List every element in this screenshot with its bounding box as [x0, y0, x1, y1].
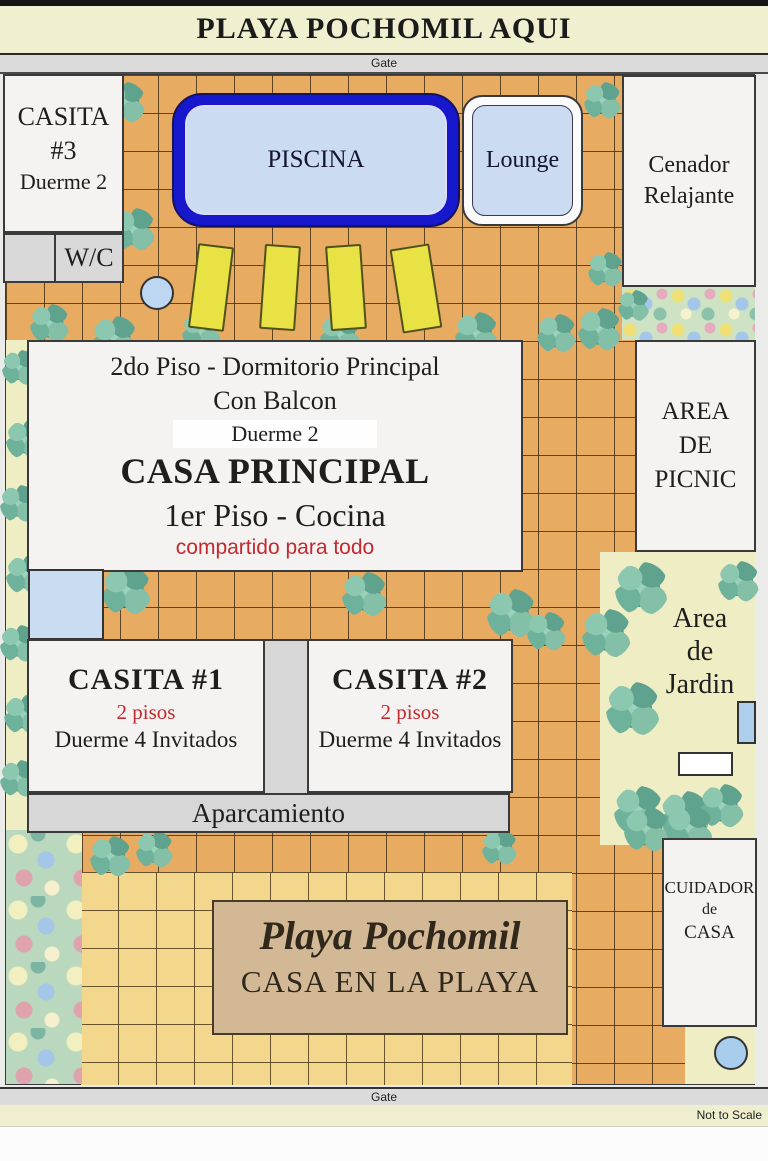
aparcamiento: Aparcamiento [27, 793, 510, 833]
casita-3-sleeps: Duerme 2 [5, 168, 122, 196]
casita-2: CASITA #2 2 pisos Duerme 4 Invitados [307, 639, 513, 793]
casa-floor2: 2do Piso - Dormitorio Principal [29, 350, 521, 384]
cenador-relajante: Cenador Relajante [622, 75, 756, 287]
cuidador-line2: de [664, 899, 755, 920]
shrub-icon [342, 572, 388, 618]
gate-top-strip: Gate [0, 55, 768, 74]
lounge-tub: Lounge [462, 95, 583, 226]
scale-note: Not to Scale [697, 1108, 762, 1122]
cuidador-line1: CUIDADOR [664, 876, 755, 899]
terrace [28, 569, 104, 640]
casita-2-floors: 2 pisos [309, 699, 511, 725]
cenador-line2: Relajante [644, 181, 735, 212]
pool-label: PISCINA [267, 146, 364, 174]
area-de-picnic: AREA DE PICNIC [635, 340, 756, 552]
shrub-icon [537, 314, 577, 354]
casitas-walkway [263, 639, 309, 793]
pool-water: PISCINA [187, 107, 445, 213]
picnic-line1: AREA [661, 395, 729, 429]
casita-3: CASITA #3 Duerme 2 [3, 74, 124, 233]
casa-principal: 2do Piso - Dormitorio Principal Con Balc… [27, 340, 523, 572]
site-plan: PLAYA POCHOMIL AQUI Gate CASITA #3 Duerm… [0, 0, 768, 1161]
cuidador-de-casa: CUIDADOR de CASA [662, 838, 757, 1027]
shrub-icon [136, 831, 174, 869]
lounge-label: Lounge [486, 147, 559, 174]
pool: PISCINA [172, 93, 460, 227]
lounge-water: Lounge [472, 105, 573, 216]
title-banner: PLAYA POCHOMIL AQUI [0, 6, 768, 55]
gate-top-label: Gate [371, 56, 397, 70]
round-table [140, 276, 174, 310]
casita-3-number: #3 [5, 134, 122, 168]
jardin-line2: de [640, 635, 760, 668]
shrub-icon [588, 252, 624, 288]
shrub-icon [30, 304, 70, 344]
shrub-icon [582, 609, 632, 659]
shrub-icon [584, 82, 622, 120]
casita-1: CASITA #1 2 pisos Duerme 4 Invitados [27, 639, 265, 793]
well-feature [714, 1036, 748, 1070]
casa-floor1: 1er Piso - Cocina [29, 494, 521, 536]
wc-room: W/C [54, 233, 124, 283]
lounge-chair [259, 244, 301, 331]
gate-bottom-label: Gate [371, 1090, 397, 1104]
picnic-line3: PICNIC [655, 463, 737, 497]
sign-line1: Playa Pochomil [214, 910, 566, 962]
casa-sleeps: Duerme 2 [173, 420, 376, 448]
aparcamiento-label: Aparcamiento [192, 798, 345, 828]
scale-note-strip: Not to Scale [0, 1105, 768, 1127]
utility-box [3, 233, 56, 283]
cenador-line1: Cenador [648, 150, 729, 181]
casita-1-name: CASITA #1 [29, 661, 263, 699]
shrub-icon [718, 561, 760, 603]
lounge-chair [325, 244, 367, 331]
casita-3-name: CASITA [5, 100, 122, 134]
jardin-line3: Jardin [640, 668, 760, 701]
garden-bench [678, 752, 733, 776]
wc-label: W/C [64, 243, 113, 273]
casa-balcony: Con Balcon [29, 384, 521, 418]
plan-area: CASITA #3 Duerme 2 W/C PISCINA Lounge Ce… [0, 74, 768, 1087]
shrub-icon [482, 830, 518, 866]
shrub-icon [90, 836, 132, 878]
shrub-icon [578, 308, 622, 352]
casita-2-sleeps: Duerme 4 Invitados [309, 725, 511, 755]
casita-1-sleeps: Duerme 4 Invitados [29, 725, 263, 755]
shrub-icon [102, 566, 152, 616]
area-de-jardin-label: Area de Jardin [640, 602, 760, 701]
gate-bottom-strip: Gate [0, 1087, 768, 1105]
casa-name: CASA PRINCIPAL [29, 448, 521, 494]
cuidador-line3: CASA [664, 920, 755, 945]
shrub-icon [618, 290, 650, 322]
picnic-line2: DE [679, 429, 712, 463]
shrub-icon [527, 612, 567, 652]
beach-sign: Playa Pochomil CASA EN LA PLAYA [212, 900, 568, 1035]
page-title: PLAYA POCHOMIL AQUI [0, 6, 768, 52]
casa-shared-note: compartido para todo [29, 536, 521, 560]
casita-2-name: CASITA #2 [309, 661, 511, 699]
jardin-line1: Area [640, 602, 760, 635]
garden-feature [737, 701, 756, 744]
casita-1-floors: 2 pisos [29, 699, 263, 725]
sign-line2: CASA EN LA PLAYA [214, 962, 566, 1002]
